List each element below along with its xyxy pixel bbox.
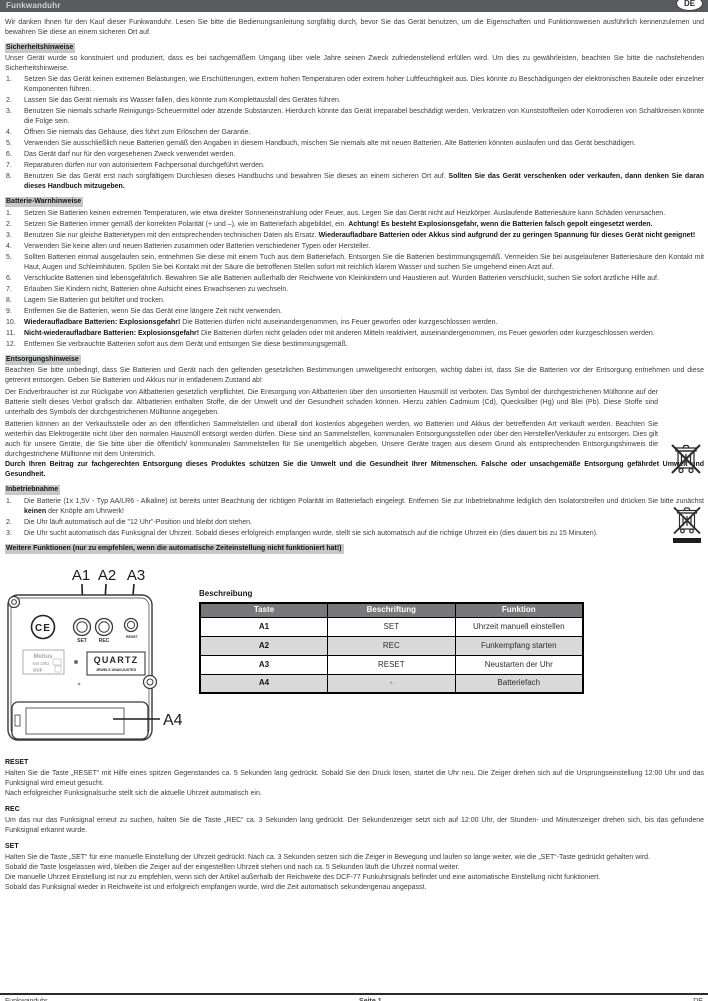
crossed-bin-icon: [670, 442, 702, 478]
footer-language: DE: [693, 997, 703, 1001]
list-item: Das Gerät darf nur für den vorgesehenen …: [5, 150, 704, 160]
svg-text:RESET: RESET: [126, 635, 139, 639]
list-item: Entfernen Sie die Batterien, wenn Sie da…: [5, 307, 704, 317]
entsorgung-p4: Durch Ihren Beitrag zur fachgerechten En…: [5, 460, 704, 480]
list-item: Reparaturen dürfen nur von autorisiertem…: [5, 161, 704, 171]
reset-p1: Halten Sie die Taste „RESET“ mit Hilfe e…: [5, 769, 704, 789]
brand-label: Mebus seit 1902 DCF: [23, 650, 64, 674]
set-p3: Die manuelle Uhrzeit Einstellung ist nur…: [5, 873, 704, 883]
quartz-label: QUARTZ JEWELS UNADJUSTED: [87, 652, 145, 675]
page-footer: Funkwanduhr Seite 1 DE: [0, 993, 708, 1001]
language-badge: DE: [676, 0, 703, 11]
list-item: Die Batterie (1x 1,5V - Typ AA/LR6 - Alk…: [5, 497, 704, 517]
list-item: Verwenden Sie keine alten und neuen Batt…: [5, 242, 704, 252]
crossed-bin-underline-icon: [672, 505, 702, 553]
entsorgung-p2: Der Endverbraucher ist zur Rückgabe von …: [5, 388, 704, 418]
svg-text:CE: CE: [35, 623, 51, 634]
list-item: Sollten Batterien einmal ausgelaufen sei…: [5, 253, 704, 273]
table-caption: Beschreibung: [199, 589, 584, 599]
heading-reset: RESET: [5, 758, 704, 768]
list-item: Benutzen Sie das Gerät erst nach sorgfäl…: [5, 172, 704, 192]
screw-dot-icon: [74, 660, 78, 664]
table-row: A4 - Batteriefach: [200, 674, 583, 693]
clock-movement-diagram: A1 A2 A3 CE: [5, 558, 197, 752]
table-row: A1 SET Uhrzeit manuell einstellen: [200, 617, 583, 636]
svg-text:DCF: DCF: [33, 668, 43, 673]
heading-inbetriebnahme: Inbetriebnahme: [5, 485, 60, 495]
svg-text:Mebus: Mebus: [33, 654, 53, 660]
intro-paragraph: Wir danken Ihnen für den Kauf dieser Fun…: [5, 18, 704, 38]
list-item: Benutzen Sie niemals scharfe Reinigungs-…: [5, 107, 704, 127]
heading-weitere-funktionen: Weitere Funktionen (nur zu empfehlen, we…: [5, 544, 344, 554]
list-item: Lassen Sie das Gerät niemals ins Wasser …: [5, 96, 704, 106]
inbetriebnahme-list: Die Batterie (1x 1,5V - Typ AA/LR6 - Alk…: [5, 497, 704, 539]
heading-rec: REC: [5, 805, 704, 815]
entsorgung-p3: Batterien können an der Verkaufsstelle o…: [5, 420, 704, 460]
heading-entsorgungshinweise: Entsorgungshinweise: [5, 355, 81, 365]
set-p4: Sobald das Funksignal wieder in Reichwei…: [5, 883, 704, 893]
table-row: A3 RESET Neustarten der Uhr: [200, 655, 583, 674]
page-header: Funkwanduhr DE: [0, 0, 708, 12]
list-item: Verschluckte Batterien sind lebensgefähr…: [5, 274, 704, 284]
list-item: Nicht-wiederaufladbare Batterien: Explos…: [5, 329, 704, 339]
list-item: Öffnen Sie niemals das Gehäuse, dies füh…: [5, 128, 704, 138]
list-item: Die Uhr sucht automatisch das Funksignal…: [5, 529, 704, 539]
list-item: Erlauben Sie Kindern nicht, Batterien oh…: [5, 285, 704, 295]
svg-text:SET: SET: [77, 638, 87, 644]
screw-dot-icon: [78, 683, 81, 686]
page-title: Funkwanduhr: [6, 1, 61, 11]
svg-text:QUARTZ: QUARTZ: [94, 655, 139, 665]
table-row: A2 REC Funkempfang starten: [200, 636, 583, 655]
list-item: Lagern Sie Batterien gut belüftet und tr…: [5, 296, 704, 306]
label-a3: A3: [127, 567, 145, 584]
heading-set: SET: [5, 842, 704, 852]
battery-compartment-icon: [12, 702, 148, 739]
label-a1: A1: [72, 567, 90, 584]
label-a2: A2: [98, 567, 116, 584]
list-item: Die Uhr läuft automatisch auf die "12 Uh…: [5, 518, 704, 528]
button-description-block: Beschreibung Taste Beschriftung Funktion…: [199, 589, 584, 752]
list-item: Entfernen Sie verbrauchte Batterien sofo…: [5, 340, 704, 350]
manual-page: Funkwanduhr DE Wir danken Ihnen für den …: [0, 0, 708, 1001]
sicherheit-list: Setzen Sie das Gerät keinen extremen Bel…: [5, 75, 704, 192]
col-taste: Taste: [200, 603, 328, 617]
set-p2: Sobald die Taste losgelassen wird, bleib…: [5, 863, 704, 873]
heading-sicherheitshinweise: Sicherheitshinweise: [5, 43, 75, 53]
list-item: Setzen Sie Batterien immer gemäß der kor…: [5, 220, 704, 230]
list-item: Benutzen Sie nur gleiche Batterietypen m…: [5, 231, 704, 241]
list-item: Setzen Sie das Gerät keinen extremen Bel…: [5, 75, 704, 95]
table-header-row: Taste Beschriftung Funktion: [200, 603, 583, 617]
button-table: Taste Beschriftung Funktion A1 SET Uhrze…: [199, 602, 584, 694]
figure-and-table: A1 A2 A3 CE: [5, 558, 704, 752]
heading-batterie-warnhinweise: Batterie-Warnhinweise: [5, 197, 83, 207]
rec-p1: Um das nur das Funksignal erneut zu such…: [5, 816, 704, 836]
movement-drawing-icon: A1 A2 A3 CE: [5, 558, 197, 748]
svg-text:JEWELS UNADJUSTED: JEWELS UNADJUSTED: [96, 668, 137, 672]
svg-text:REC: REC: [99, 638, 110, 644]
col-funktion: Funktion: [455, 603, 583, 617]
list-item: Wiederaufladbare Batterien: Explosionsge…: [5, 318, 704, 328]
batterie-list: Setzen Sie Batterien keinen extremen Tem…: [5, 209, 704, 350]
label-a4: A4: [163, 712, 183, 729]
col-beschriftung: Beschriftung: [328, 603, 456, 617]
footer-doc-name: Funkwanduhr: [5, 997, 47, 1001]
footer-page-number: Seite 1: [359, 997, 382, 1001]
reset-p2: Nach erfolgreicher Funksignalsuche stell…: [5, 789, 704, 799]
entsorgung-p1: Beachten Sie bitte unbedingt, dass Sie B…: [5, 366, 704, 386]
list-item: Setzen Sie Batterien keinen extremen Tem…: [5, 209, 704, 219]
list-item: Verwenden Sie ausschließlich neue Batter…: [5, 139, 704, 149]
svg-text:seit 1902: seit 1902: [33, 661, 51, 666]
sicherheit-intro: Unser Gerät wurde so konstruiert und pro…: [5, 54, 704, 74]
set-p1: Halten Sie die Taste „SET“ für eine manu…: [5, 853, 704, 863]
